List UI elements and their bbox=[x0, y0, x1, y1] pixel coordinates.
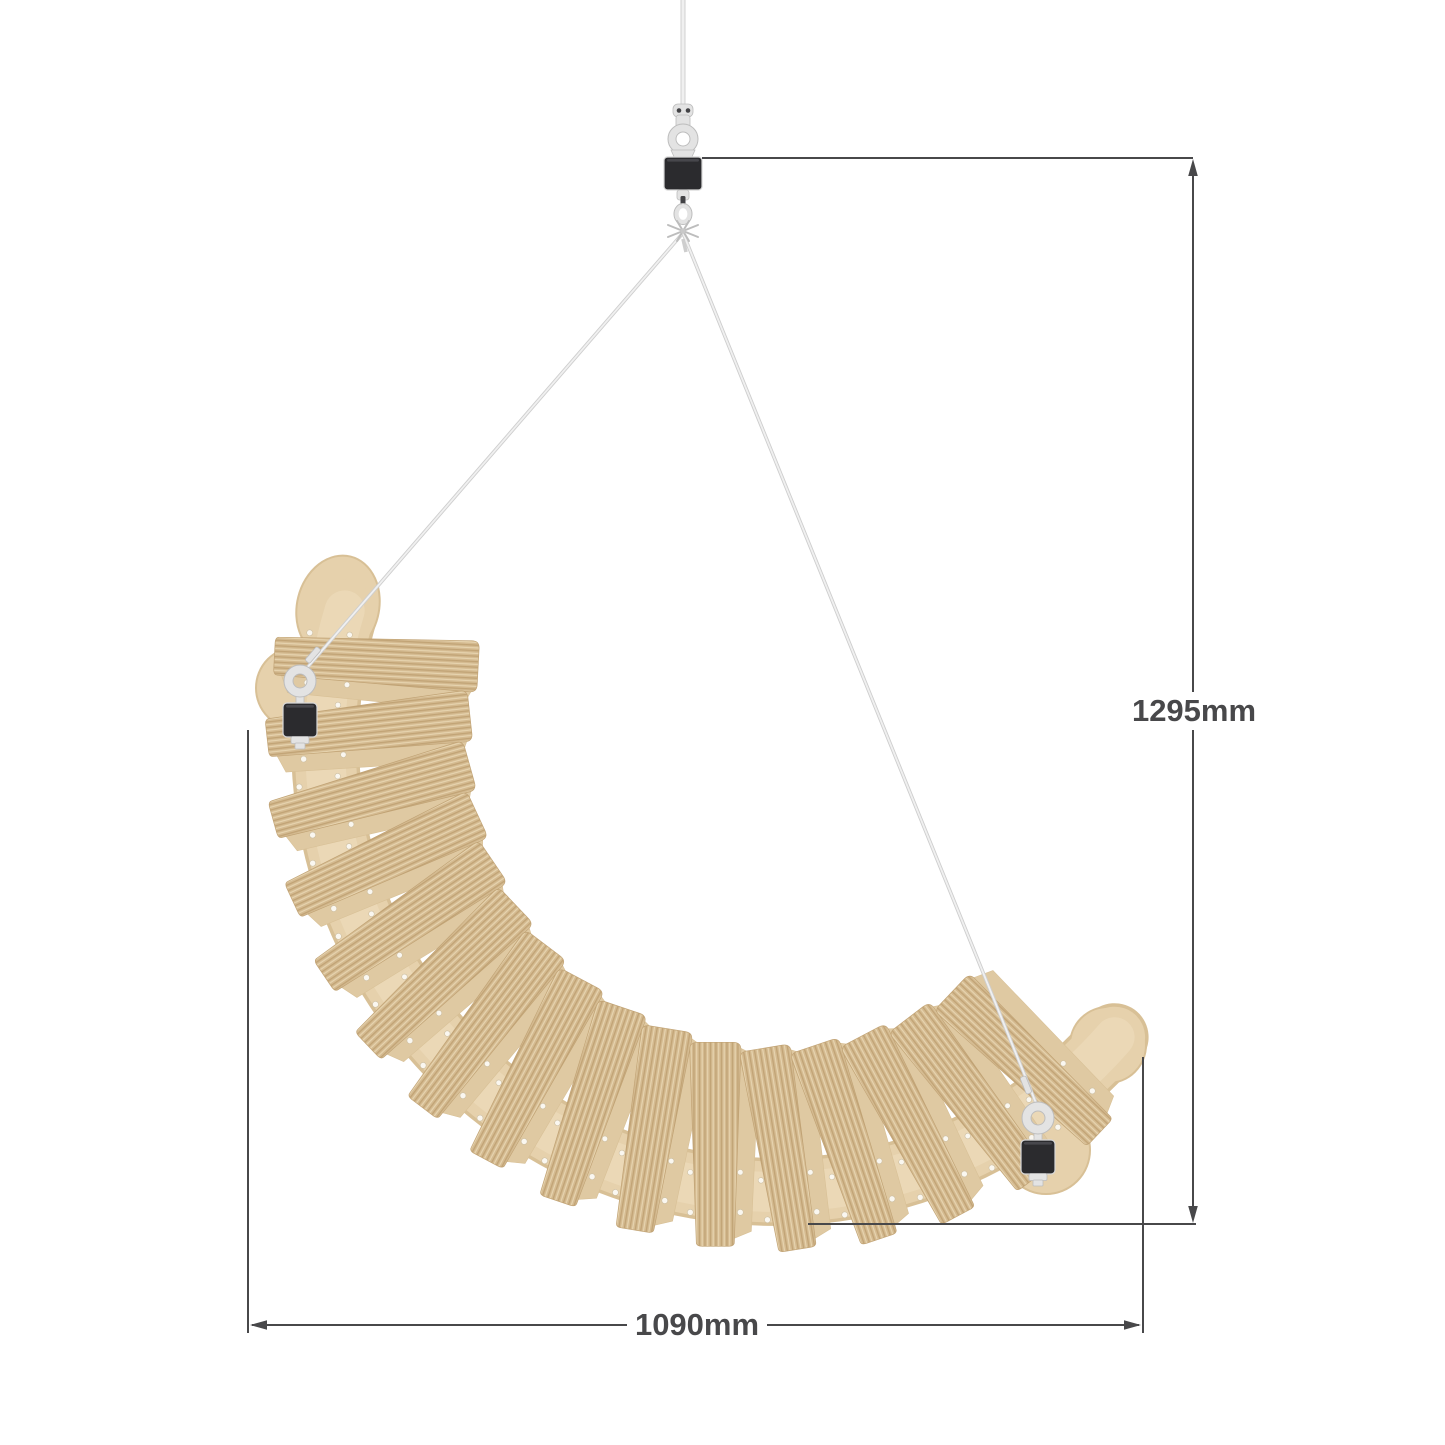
swivel-ring bbox=[672, 128, 694, 150]
hex-nut bbox=[1029, 1174, 1047, 1181]
left-suspension-cable bbox=[306, 233, 683, 669]
hex-nut-lock bbox=[295, 743, 305, 749]
connector-cube-left bbox=[283, 703, 317, 737]
horizontal-dimension-label: 1090mm bbox=[627, 1306, 767, 1344]
swage-pin bbox=[686, 108, 691, 113]
hex-nut bbox=[291, 737, 309, 744]
cube-highlight bbox=[667, 159, 699, 162]
swage-pin bbox=[677, 108, 682, 113]
arc-slats bbox=[264, 628, 1130, 1254]
arrow-right-icon bbox=[1124, 1320, 1141, 1330]
connector-cube-top bbox=[664, 157, 702, 190]
connector-cube-right bbox=[1021, 1140, 1055, 1174]
arrow-left-icon bbox=[250, 1320, 267, 1330]
hex-nut-lock bbox=[1033, 1180, 1043, 1186]
cube-highlight bbox=[286, 705, 314, 708]
link-ring bbox=[677, 206, 690, 222]
splitter-center bbox=[680, 228, 685, 233]
vertical-dimension-label: 1295mm bbox=[1124, 692, 1264, 730]
right-suspension-cable bbox=[683, 233, 1036, 1103]
product-render-page: 1295mm 1090mm bbox=[0, 0, 1445, 1445]
swivel-ring-inner-edge bbox=[676, 132, 690, 146]
arrow-down-icon bbox=[1188, 1206, 1198, 1223]
arrow-up-icon bbox=[1188, 159, 1198, 176]
top-hanger bbox=[664, 0, 702, 252]
cube-highlight bbox=[1024, 1142, 1052, 1145]
